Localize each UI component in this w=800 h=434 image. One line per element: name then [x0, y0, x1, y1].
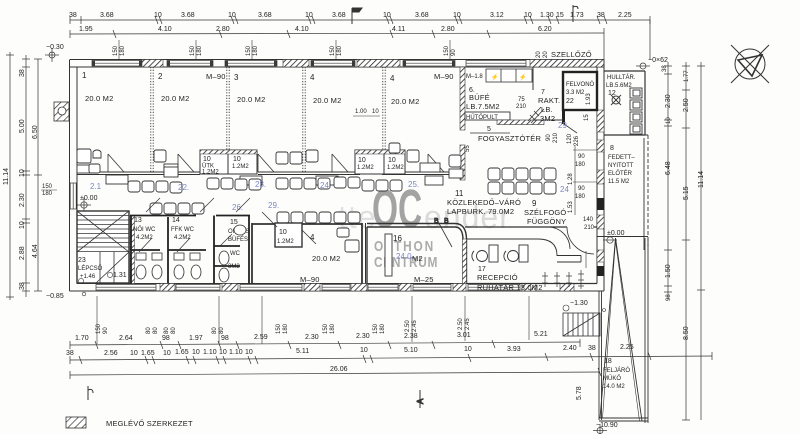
svg-text:10: 10 — [388, 157, 396, 164]
svg-text:150: 150 — [373, 323, 379, 334]
svg-text:6.50: 6.50 — [32, 125, 39, 139]
svg-text:10: 10 — [163, 350, 171, 357]
svg-text:5.00: 5.00 — [19, 119, 26, 133]
svg-text:ÜTK: ÜTK — [202, 163, 214, 170]
svg-text:10: 10 — [233, 156, 241, 163]
svg-text:2.1: 2.1 — [90, 182, 102, 191]
svg-text:3.93: 3.93 — [507, 346, 521, 353]
svg-text:M2: M2 — [412, 254, 423, 263]
svg-text:LÉPCSŐ: LÉPCSŐ — [78, 265, 103, 272]
svg-text:180: 180 — [120, 45, 126, 56]
svg-text:80: 80 — [219, 327, 225, 334]
svg-text:80: 80 — [146, 327, 152, 334]
svg-text:3.68: 3.68 — [100, 12, 114, 19]
svg-text:RUHATÁR 13.0M2: RUHATÁR 13.0M2 — [477, 283, 543, 292]
svg-text:10: 10 — [279, 229, 287, 236]
svg-text:−1.30: −1.30 — [570, 300, 588, 307]
svg-text:5: 5 — [487, 126, 491, 133]
svg-text:14.0 M2: 14.0 M2 — [603, 384, 625, 390]
svg-text:1.73: 1.73 — [570, 12, 584, 19]
svg-text:1.70: 1.70 — [75, 335, 89, 342]
svg-text:24.0: 24.0 — [396, 252, 412, 261]
svg-text:38: 38 — [19, 69, 26, 77]
svg-text:80: 80 — [212, 327, 218, 334]
svg-text:LB.: LB. — [541, 105, 553, 114]
svg-text:15: 15 — [556, 12, 564, 19]
svg-text:10: 10 — [130, 350, 138, 357]
svg-text:150: 150 — [42, 184, 53, 190]
svg-text:2.45: 2.45 — [412, 320, 418, 332]
svg-text:⚡: ⚡ — [519, 73, 526, 81]
svg-text:14: 14 — [172, 217, 180, 224]
svg-text:29: 29 — [558, 121, 567, 130]
svg-text:90: 90 — [546, 134, 552, 141]
svg-text:FOGYASZTÓTÉR: FOGYASZTÓTÉR — [478, 134, 541, 143]
svg-text:23: 23 — [78, 257, 86, 264]
svg-text:1.65: 1.65 — [175, 349, 189, 356]
svg-text:1.28: 1.28 — [568, 173, 574, 185]
svg-text:2.25: 2.25 — [618, 12, 632, 19]
svg-text:80: 80 — [164, 327, 170, 334]
svg-text:180: 180 — [337, 45, 343, 56]
svg-text:90: 90 — [578, 186, 585, 192]
svg-text:80: 80 — [171, 327, 177, 334]
svg-text:BÜFÉ: BÜFÉ — [469, 93, 490, 102]
svg-text:22.: 22. — [178, 183, 189, 192]
svg-text:4.10: 4.10 — [158, 26, 172, 33]
svg-text:10: 10 — [383, 12, 391, 19]
svg-text:2.30: 2.30 — [665, 94, 672, 108]
svg-text:20.0 M2: 20.0 M2 — [161, 94, 190, 103]
svg-text:75: 75 — [518, 97, 525, 103]
svg-text:1.2M2: 1.2M2 — [202, 170, 219, 176]
svg-text:4: 4 — [310, 73, 315, 82]
svg-text:1.2M2: 1.2M2 — [232, 164, 249, 170]
svg-text:150: 150 — [444, 45, 450, 56]
svg-text:1.2M2: 1.2M2 — [277, 239, 294, 245]
svg-text:98: 98 — [666, 294, 672, 301]
svg-text:3M2: 3M2 — [540, 114, 555, 123]
svg-text:9: 9 — [532, 199, 537, 208]
svg-text:210: 210 — [553, 132, 559, 143]
svg-text:1.2M2: 1.2M2 — [387, 165, 404, 171]
svg-text:2.80: 2.80 — [216, 26, 230, 33]
svg-text:HULLTÁR.: HULLTÁR. — [607, 74, 636, 81]
svg-text:M–90: M–90 — [300, 275, 320, 284]
svg-text:M–90: M–90 — [206, 72, 226, 81]
svg-text:55: 55 — [465, 145, 471, 152]
svg-text:FFK WC: FFK WC — [171, 227, 195, 233]
svg-text:90: 90 — [578, 154, 585, 160]
svg-text:10: 10 — [245, 349, 253, 356]
svg-text:13: 13 — [134, 217, 142, 224]
svg-text:10: 10 — [19, 221, 26, 229]
svg-text:5.15: 5.15 — [683, 186, 690, 200]
svg-text:120: 120 — [567, 133, 573, 144]
svg-text:80: 80 — [153, 327, 159, 334]
svg-text:2.30: 2.30 — [19, 193, 26, 207]
svg-text:20.0 M2: 20.0 M2 — [85, 94, 114, 103]
svg-text:16: 16 — [393, 234, 402, 243]
svg-text:10: 10 — [524, 12, 532, 19]
svg-text:1.10: 1.10 — [229, 349, 243, 356]
svg-text:2.59: 2.59 — [254, 334, 268, 341]
svg-text:5.78: 5.78 — [576, 386, 583, 400]
svg-text:±0.00: ±0.00 — [80, 195, 98, 202]
svg-text:4.2M2: 4.2M2 — [174, 235, 191, 241]
svg-text:38: 38 — [662, 65, 668, 72]
svg-text:10: 10 — [666, 117, 672, 124]
svg-text:1.65: 1.65 — [141, 350, 155, 357]
svg-text:4: 4 — [390, 74, 395, 83]
svg-text:3: 3 — [234, 73, 239, 82]
svg-text:3.68: 3.68 — [415, 12, 429, 19]
svg-text:1.97: 1.97 — [189, 335, 203, 342]
svg-text:B: B — [444, 218, 449, 225]
svg-text:4.64: 4.64 — [32, 244, 39, 258]
svg-text:B: B — [434, 218, 439, 225]
svg-text:26.06: 26.06 — [330, 366, 348, 373]
svg-text:10: 10 — [453, 12, 461, 19]
svg-text:10: 10 — [305, 12, 313, 19]
svg-text:2.30: 2.30 — [356, 333, 370, 340]
svg-text:NYITOTT: NYITOTT — [608, 163, 634, 169]
svg-text:1.53: 1.53 — [568, 201, 574, 213]
svg-text:11.14: 11.14 — [698, 171, 705, 188]
svg-text:1.10: 1.10 — [203, 349, 217, 356]
svg-text:6.48: 6.48 — [665, 161, 672, 175]
svg-text:2.80: 2.80 — [441, 26, 455, 33]
svg-text:NŐI WC: NŐI WC — [133, 226, 156, 233]
svg-text:20.0 M2: 20.0 M2 — [391, 97, 420, 106]
svg-text:180: 180 — [253, 45, 259, 56]
svg-text:FELVONÓ: FELVONÓ — [566, 81, 595, 88]
svg-text:1.50: 1.50 — [665, 264, 672, 278]
svg-text:180: 180 — [575, 194, 586, 200]
svg-text:±0.00: ±0.00 — [607, 230, 625, 237]
svg-text:FEDETT–: FEDETT– — [608, 155, 635, 161]
svg-text:8.50: 8.50 — [683, 326, 690, 340]
svg-text:17: 17 — [478, 266, 486, 273]
svg-text:3.68: 3.68 — [181, 12, 195, 19]
svg-text:4.2M2: 4.2M2 — [136, 235, 153, 241]
svg-text:M–25: M–25 — [414, 275, 434, 284]
svg-text:23.: 23. — [255, 180, 266, 189]
svg-text:2.64: 2.64 — [119, 335, 133, 342]
svg-text:11: 11 — [455, 189, 464, 198]
svg-text:−0.85: −0.85 — [46, 293, 64, 300]
svg-text:8: 8 — [610, 145, 614, 152]
svg-text:18: 18 — [604, 358, 612, 365]
svg-text:1: 1 — [82, 71, 87, 80]
svg-text:LB.5.6M2: LB.5.6M2 — [606, 83, 632, 89]
svg-text:5.21: 5.21 — [534, 331, 548, 338]
svg-text:180: 180 — [197, 45, 203, 56]
svg-text:BÜFÉS: BÜFÉS — [228, 236, 248, 243]
svg-text:20.0 M2: 20.0 M2 — [312, 254, 341, 263]
svg-text:150: 150 — [323, 323, 329, 334]
svg-text:MŰKŐ: MŰKŐ — [603, 375, 621, 382]
svg-text:24: 24 — [560, 185, 569, 194]
svg-text:SZÉLFOGÓ: SZÉLFOGÓ — [524, 208, 566, 217]
svg-text:210: 210 — [584, 225, 595, 231]
svg-text:−0×62: −0×62 — [648, 57, 668, 64]
svg-text:2: 2 — [158, 72, 163, 81]
svg-text:10: 10 — [464, 346, 472, 353]
svg-text:180: 180 — [380, 323, 386, 334]
svg-text:3.68: 3.68 — [258, 12, 272, 19]
svg-text:20.0 M2: 20.0 M2 — [313, 96, 342, 105]
svg-text:11.14: 11.14 — [3, 168, 10, 185]
svg-text:3.68: 3.68 — [332, 12, 346, 19]
svg-text:2.50: 2.50 — [458, 318, 464, 330]
svg-text:4.10: 4.10 — [295, 26, 309, 33]
svg-text:38: 38 — [597, 12, 605, 19]
svg-text:150: 150 — [246, 45, 252, 56]
svg-text:RAKT.: RAKT. — [538, 96, 560, 105]
svg-text:2.38: 2.38 — [404, 333, 418, 340]
svg-text:10: 10 — [372, 109, 379, 115]
svg-text:150: 150 — [330, 45, 336, 56]
svg-text:6.20: 6.20 — [538, 26, 552, 33]
svg-text:5.10: 5.10 — [404, 347, 418, 354]
svg-text:1.93: 1.93 — [586, 93, 592, 105]
svg-text:10: 10 — [219, 349, 227, 356]
svg-text:140: 140 — [583, 217, 594, 223]
svg-text:180: 180 — [283, 323, 289, 334]
svg-text:KÖZLEKEDŐ–VÁRÓ: KÖZLEKEDŐ–VÁRÓ — [447, 198, 521, 207]
svg-text:22: 22 — [566, 98, 574, 105]
svg-text:210: 210 — [516, 104, 527, 110]
svg-text:3.12: 3.12 — [490, 12, 504, 19]
svg-text:150: 150 — [113, 45, 119, 56]
svg-text:2.25: 2.25 — [620, 344, 634, 351]
svg-text:4.11: 4.11 — [392, 26, 405, 33]
svg-text:2.56: 2.56 — [104, 350, 118, 357]
svg-text:98: 98 — [221, 335, 229, 342]
svg-text:90: 90 — [103, 327, 109, 334]
svg-text:1.30: 1.30 — [540, 12, 554, 19]
svg-text:38: 38 — [588, 345, 596, 352]
svg-text:38: 38 — [19, 282, 26, 290]
svg-text:ELŐTÉR: ELŐTÉR — [608, 170, 633, 177]
svg-text:1.00: 1.00 — [355, 109, 367, 115]
svg-text:180: 180 — [42, 191, 53, 197]
svg-text:25.: 25. — [408, 180, 419, 189]
svg-text:M–1.8: M–1.8 — [466, 74, 483, 80]
svg-text:180: 180 — [330, 323, 336, 334]
svg-text:LAPBURK. 79.0M2: LAPBURK. 79.0M2 — [447, 207, 514, 216]
svg-text:HŰTŐPULT: HŰTŐPULT — [466, 114, 498, 121]
svg-text:RECEPCIÓ: RECEPCIÓ — [477, 273, 518, 282]
svg-text:11.5 M2: 11.5 M2 — [608, 179, 630, 185]
svg-text:38: 38 — [69, 12, 77, 19]
svg-text:10: 10 — [192, 349, 200, 356]
svg-text:20.0 M2: 20.0 M2 — [237, 95, 266, 104]
svg-text:1.77: 1.77 — [684, 70, 690, 82]
svg-text:2.50: 2.50 — [405, 320, 411, 332]
svg-text:226: 226 — [574, 135, 580, 146]
svg-text:2.88: 2.88 — [19, 246, 26, 260]
svg-text:5.11: 5.11 — [296, 348, 309, 355]
svg-text:10: 10 — [228, 12, 236, 19]
svg-text:MEGLÉVŐ SZERKEZET: MEGLÉVŐ SZERKEZET — [106, 419, 193, 428]
svg-text:−0.30: −0.30 — [46, 44, 64, 51]
svg-text:98: 98 — [162, 335, 170, 342]
svg-text:10: 10 — [154, 12, 162, 19]
svg-text:WC: WC — [230, 251, 241, 257]
svg-text:7: 7 — [541, 89, 545, 96]
svg-text:150: 150 — [276, 323, 282, 334]
svg-text:38: 38 — [66, 350, 74, 357]
svg-text:⚡: ⚡ — [491, 73, 498, 81]
svg-text:2.45: 2.45 — [465, 318, 471, 330]
svg-text:SZELLŐZŐ: SZELLŐZŐ — [551, 50, 592, 59]
svg-text:180: 180 — [575, 162, 586, 168]
svg-text:A: A — [416, 398, 425, 404]
svg-text:FÜGGÖNY: FÜGGÖNY — [527, 217, 566, 226]
svg-text:90: 90 — [451, 49, 457, 56]
svg-text:FELJÁRÓ: FELJÁRÓ — [603, 367, 630, 374]
svg-text:15: 15 — [230, 219, 238, 226]
svg-text:3.3 M2: 3.3 M2 — [566, 90, 585, 96]
svg-text:3.01: 3.01 — [457, 332, 471, 339]
svg-text:10: 10 — [19, 169, 26, 177]
svg-text:3M2: 3M2 — [228, 264, 240, 270]
svg-text:15: 15 — [584, 114, 590, 121]
svg-text:150: 150 — [190, 45, 196, 56]
svg-text:LB.7.5M2: LB.7.5M2 — [466, 102, 500, 111]
svg-text:10: 10 — [360, 347, 368, 354]
svg-text:10: 10 — [203, 156, 211, 163]
svg-text:1.31: 1.31 — [113, 272, 127, 279]
svg-text:20: 20 — [536, 51, 542, 58]
svg-text:2.50: 2.50 — [683, 98, 690, 112]
svg-text:24.: 24. — [320, 181, 331, 190]
svg-text:M–90: M–90 — [434, 72, 454, 81]
svg-text:29.: 29. — [268, 201, 279, 210]
svg-text:1.2M2: 1.2M2 — [357, 165, 374, 171]
svg-text:2.30: 2.30 — [305, 334, 319, 341]
svg-text:20: 20 — [543, 51, 549, 58]
svg-text:10: 10 — [358, 157, 366, 164]
svg-text:1.95: 1.95 — [79, 26, 93, 33]
svg-text:2.40: 2.40 — [563, 345, 577, 352]
